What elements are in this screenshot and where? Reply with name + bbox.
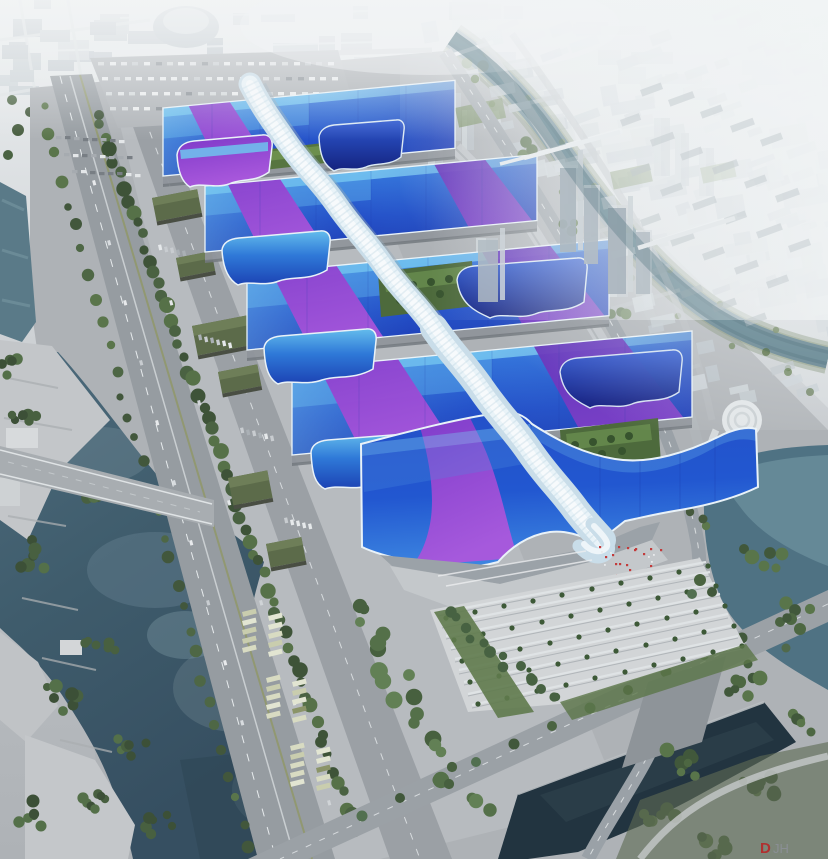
svg-text:D: D bbox=[760, 840, 771, 857]
svg-text:JH: JH bbox=[773, 841, 789, 856]
